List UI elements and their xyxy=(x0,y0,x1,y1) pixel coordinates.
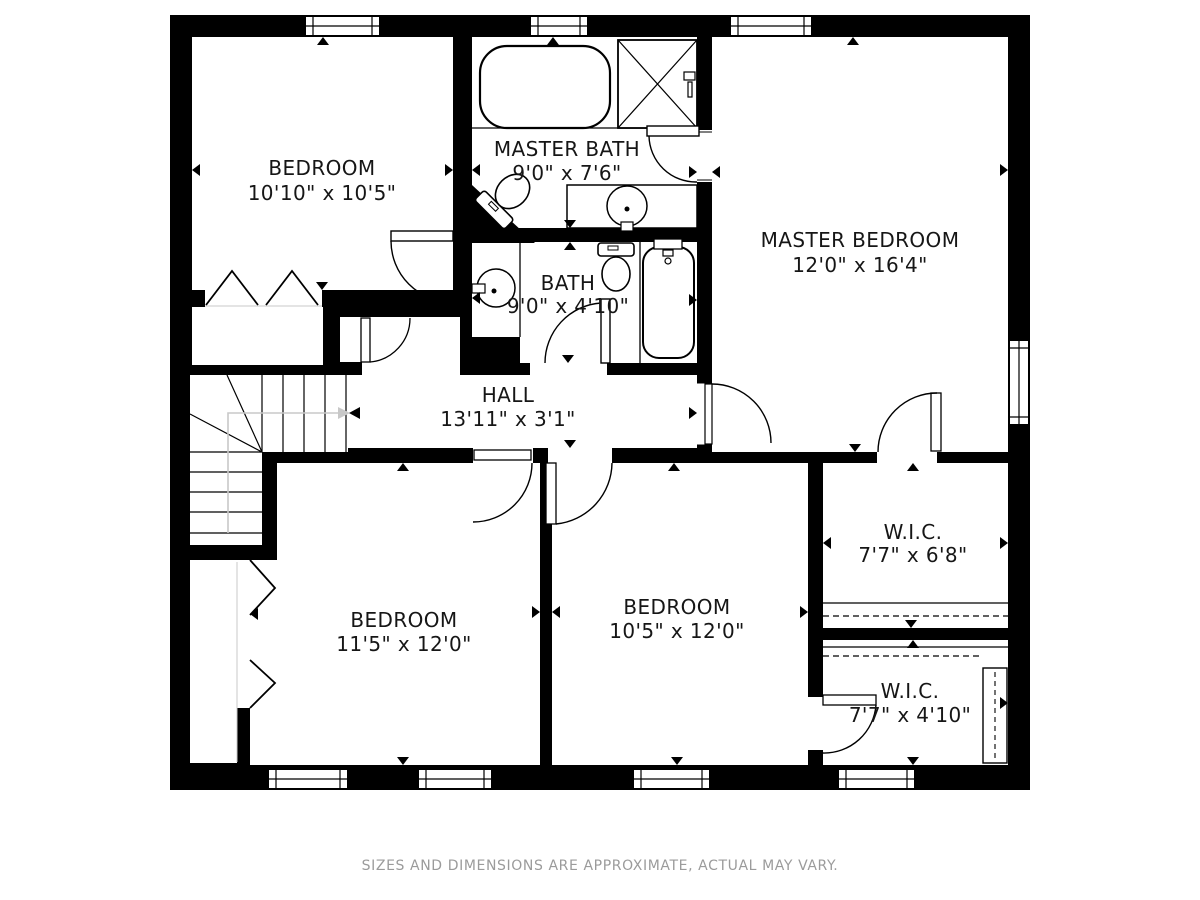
sink-icon xyxy=(567,185,697,231)
room-label-wic-top: W.I.C. xyxy=(884,520,943,544)
window-icon xyxy=(1009,340,1029,425)
closet-top-left-opening xyxy=(205,290,322,307)
room-label-master-bedroom: MASTER BEDROOM xyxy=(761,228,960,252)
wic-bottom-door-opening xyxy=(808,697,823,750)
bedroom-bottom-middle-door-opening xyxy=(548,448,612,463)
room-dims-master-bedroom: 12'0" x 16'4" xyxy=(792,253,928,277)
room-dims-bedroom-bottom-left: 11'5" x 12'0" xyxy=(336,632,472,656)
window-icon xyxy=(305,16,380,36)
room-label-hall: HALL xyxy=(482,383,535,407)
floor-plan-canvas: BEDROOM 10'10" x 10'5" MASTER BATH 9'0" … xyxy=(0,0,1200,900)
window-icon xyxy=(268,769,348,789)
window-icon xyxy=(838,769,915,789)
room-dims-bedroom-bottom-middle: 10'5" x 12'0" xyxy=(609,619,745,643)
bathtub-icon xyxy=(480,46,610,128)
window-icon xyxy=(530,16,588,36)
shower-icon xyxy=(618,40,697,128)
room-label-wic-bottom: W.I.C. xyxy=(881,679,940,703)
window-icon xyxy=(730,16,812,36)
bathtub-icon xyxy=(640,239,694,363)
room-dims-bedroom-top-left: 10'10" x 10'5" xyxy=(248,181,397,205)
closet-top-left-floor xyxy=(192,307,323,365)
room-dims-wic-bottom: 7'7" x 4'10" xyxy=(849,703,971,727)
room-dims-hall: 13'11" x 3'1" xyxy=(440,407,576,431)
room-label-bedroom-top-left: BEDROOM xyxy=(268,156,375,180)
room-dims-master-bath: 9'0" x 7'6" xyxy=(512,161,621,185)
room-dims-wic-top: 7'7" x 6'8" xyxy=(858,543,967,567)
room-label-bedroom-bottom-middle: BEDROOM xyxy=(623,595,730,619)
closet-bottom-left-floor xyxy=(190,560,237,763)
stairs-lower-run-floor xyxy=(190,452,262,545)
disclaimer-text: SIZES AND DIMENSIONS ARE APPROXIMATE, AC… xyxy=(362,858,839,874)
room-label-bedroom-bottom-left: BEDROOM xyxy=(350,608,457,632)
room-label-bath: BATH xyxy=(541,271,596,295)
room-bedroom-bottom-left-floor-sw xyxy=(250,708,277,765)
window-icon xyxy=(633,769,710,789)
master-bath-door-opening xyxy=(697,130,712,182)
window-icon xyxy=(418,769,492,789)
wic-top-door-opening xyxy=(877,448,937,463)
hall-alcove-floor xyxy=(362,317,460,375)
floor-plan-page: BEDROOM 10'10" x 10'5" MASTER BATH 9'0" … xyxy=(0,0,1200,900)
room-dims-bath: 9'0" x 4'10" xyxy=(507,294,629,318)
linen-closet-floor xyxy=(340,317,362,362)
room-label-master-bath: MASTER BATH xyxy=(494,137,640,161)
bath-door-opening xyxy=(530,363,607,375)
